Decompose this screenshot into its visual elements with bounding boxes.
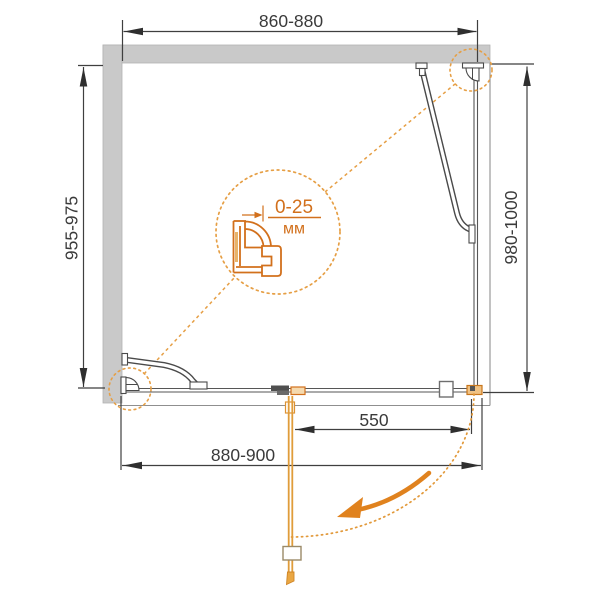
arrow-left <box>296 426 315 434</box>
arrow-right <box>451 426 470 434</box>
door-open-position <box>283 396 301 585</box>
wall-left <box>103 45 122 403</box>
dim-top-label: 860-880 <box>259 11 323 31</box>
arrow-right <box>458 28 477 36</box>
dim-bottom: 880-900 <box>121 396 482 470</box>
swing-direction-arrow <box>337 473 429 518</box>
dim-right: 980-1000 <box>483 64 534 393</box>
shower-enclosure-drawing: 860-880 955-975 980-1000 880-900 550 <box>0 0 600 600</box>
door-edge-profile <box>287 572 295 585</box>
dim-door: 550 <box>295 399 472 434</box>
bar-glass-clamp <box>190 382 207 389</box>
arrow-left <box>123 462 142 470</box>
arrow-left <box>124 28 143 36</box>
bar-glass-clamp <box>469 225 475 243</box>
bar-wall-anchor <box>122 354 128 366</box>
dim-left-label: 955-975 <box>62 196 82 260</box>
detail-view: 0-25 мм <box>216 170 340 294</box>
wall-top <box>103 45 490 63</box>
door-handle-closed <box>440 382 454 398</box>
dim-bottom-label: 880-900 <box>211 445 275 465</box>
wall-profile-bottom-left <box>121 377 139 394</box>
arrow-down <box>80 368 88 387</box>
drawing-canvas: 860-880 955-975 980-1000 880-900 550 <box>0 0 600 600</box>
door-handle-open <box>283 547 301 561</box>
arrow-down <box>523 372 531 391</box>
dim-door-label: 550 <box>359 410 388 430</box>
arrow-right <box>462 462 481 470</box>
dim-left: 955-975 <box>62 66 106 389</box>
arrow-up <box>523 67 531 86</box>
bar-wall-anchor <box>416 63 427 69</box>
detail-range-label: 0-25 <box>275 197 313 218</box>
dim-right-label: 980-1000 <box>501 190 521 264</box>
detail-unit-label: мм <box>283 221 305 238</box>
door-magnet-profile <box>467 386 482 395</box>
wall-profile-top-right <box>463 63 484 81</box>
arrow-up <box>80 68 88 87</box>
